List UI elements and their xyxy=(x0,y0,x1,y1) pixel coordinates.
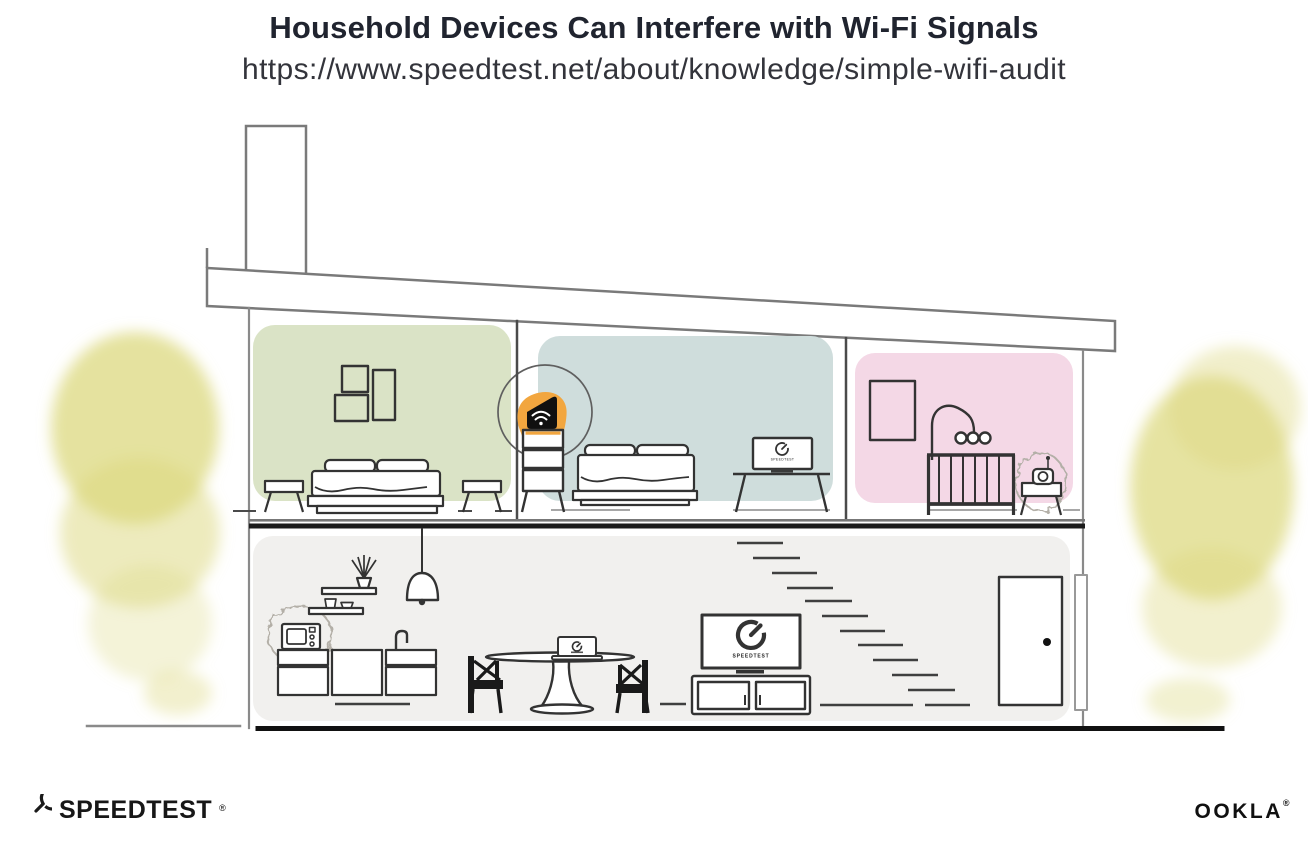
page-title: Household Devices Can Interfere with Wi-… xyxy=(0,10,1308,46)
page-url: https://www.speedtest.net/about/knowledg… xyxy=(0,53,1308,87)
speedtest-logo: SPEEDTEST ® xyxy=(20,794,226,826)
laptop xyxy=(552,637,602,660)
foliage-right xyxy=(1130,346,1301,722)
speedtest-trademark: ® xyxy=(219,803,226,813)
ookla-wordmark: OOKLA xyxy=(1195,800,1283,823)
ookla-logo: OOKLA® xyxy=(1195,800,1292,824)
tv-screen-label: SPEEDTEST xyxy=(733,654,770,660)
chimney xyxy=(246,126,306,278)
door-knob xyxy=(1043,638,1051,646)
downspout xyxy=(1075,575,1087,710)
monitor-screen-label: SPEEDTEST xyxy=(771,458,795,462)
infographic-page: { "header": { "title": "Household Device… xyxy=(0,0,1308,861)
speedtest-wordmark: SPEEDTEST xyxy=(59,796,212,825)
ookla-trademark: ® xyxy=(1283,798,1292,808)
foliage-left xyxy=(51,332,220,715)
tv: SPEEDTEST xyxy=(702,615,800,674)
microwave xyxy=(282,624,320,649)
header: Household Devices Can Interfere with Wi-… xyxy=(0,0,1308,87)
tv-console xyxy=(692,676,810,714)
speedtest-gauge-icon xyxy=(20,794,52,826)
bed xyxy=(308,460,443,513)
front-door xyxy=(999,577,1062,705)
house-illustration: SPEEDTEST xyxy=(0,108,1308,758)
bed xyxy=(573,445,697,505)
